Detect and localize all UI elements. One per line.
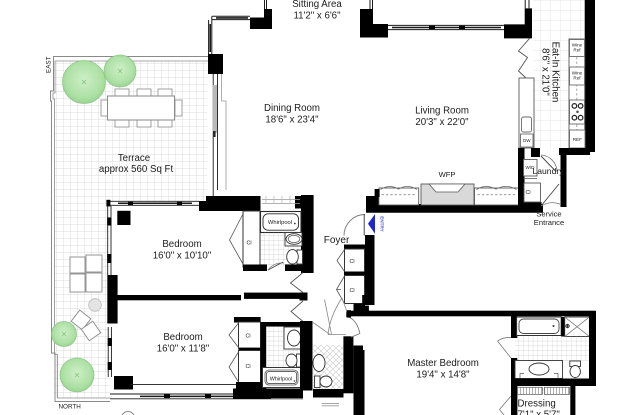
svg-text:Ref: Ref [573, 48, 581, 53]
svg-text:Cl: Cl [525, 190, 530, 196]
svg-text:Foyer: Foyer [324, 235, 350, 246]
svg-text:REF: REF [573, 137, 582, 142]
svg-text:Cl: Cl [349, 259, 354, 265]
svg-text:7'1" x 5'7": 7'1" x 5'7" [518, 410, 561, 415]
svg-text:Laundry: Laundry [532, 166, 564, 176]
svg-text:DW: DW [523, 138, 531, 143]
svg-text:Cl: Cl [349, 288, 354, 294]
svg-text:Entrance: Entrance [534, 218, 564, 227]
svg-text:NORTH: NORTH [59, 404, 82, 411]
svg-text:Dining Room: Dining Room [264, 103, 320, 114]
svg-text:Bedroom: Bedroom [163, 332, 202, 343]
svg-text:Cl: Cl [245, 364, 250, 370]
svg-text:EAST: EAST [46, 56, 53, 73]
svg-text:Living Room: Living Room [415, 106, 469, 117]
svg-text:Master Bedroom: Master Bedroom [407, 358, 479, 369]
svg-text:8'6" x 21'0": 8'6" x 21'0" [540, 48, 551, 96]
svg-text:16'0" x 11'8": 16'0" x 11'8" [157, 344, 210, 355]
svg-text:Cl: Cl [245, 334, 250, 340]
svg-text:WFP: WFP [439, 170, 456, 179]
svg-text:approx 560 Sq Ft: approx 560 Sq Ft [99, 164, 174, 175]
svg-text:Whirlpool: Whirlpool [268, 220, 292, 226]
svg-text:Cl: Cl [246, 241, 251, 247]
svg-text:Terrace: Terrace [118, 153, 150, 164]
svg-text:Whirlpool: Whirlpool [270, 377, 292, 383]
svg-text:Ref: Ref [573, 76, 581, 81]
svg-text:ENTRY: ENTRY [380, 216, 385, 231]
svg-text:16'0" x 10'10": 16'0" x 10'10" [153, 251, 212, 262]
svg-text:Sitting Area: Sitting Area [292, 0, 342, 10]
svg-text:20'3" x 22'0": 20'3" x 22'0" [415, 117, 469, 128]
svg-text:19'4" x 14'8": 19'4" x 14'8" [416, 370, 470, 381]
svg-text:18'6" x 23'4": 18'6" x 23'4" [265, 115, 319, 126]
svg-text:11'2" x 6'6": 11'2" x 6'6" [293, 11, 341, 22]
svg-text:Dressing: Dressing [518, 399, 556, 410]
svg-text:Bedroom: Bedroom [162, 239, 201, 250]
